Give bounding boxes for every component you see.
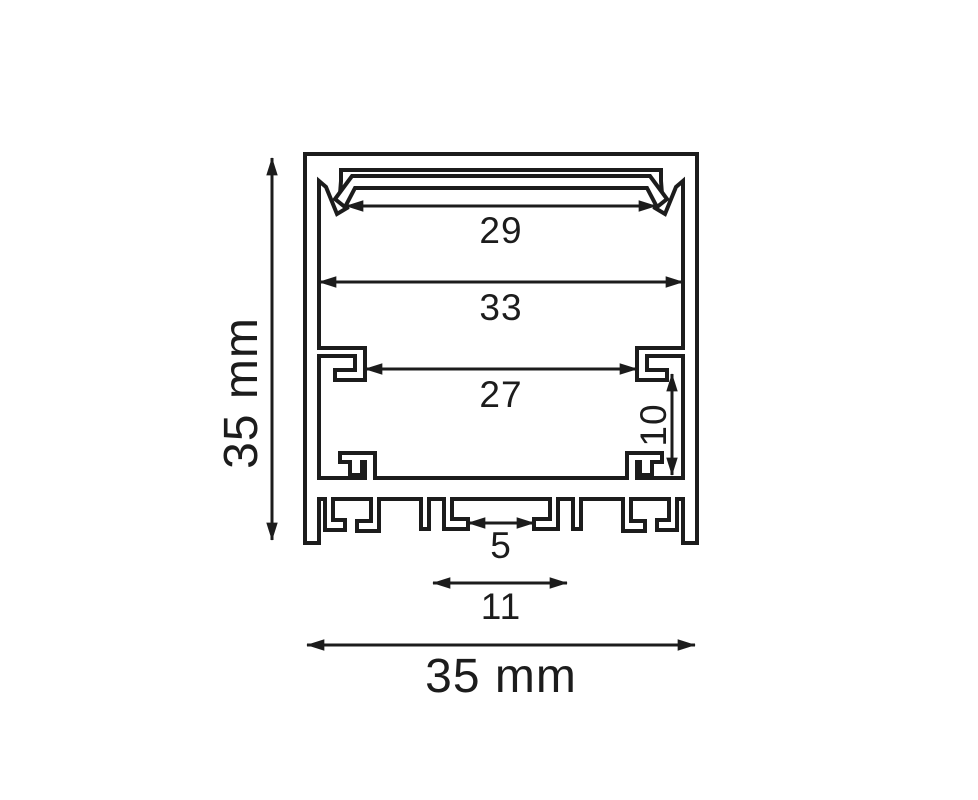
dim-10-label: 10 (633, 403, 674, 446)
profile-cross-section-drawing: 29 33 27 10 5 11 35 mm (0, 0, 978, 800)
dimension-base-channel-width: 11 (433, 583, 567, 627)
diffuser-cover-plate (335, 176, 667, 207)
dimension-overall-height: 35 mm (215, 158, 272, 540)
drawing-canvas: 29 33 27 10 5 11 35 mm (0, 0, 978, 800)
dimension-diffuser-opening: 29 (346, 206, 656, 251)
dim-5-label: 5 (490, 525, 512, 566)
dimension-base-slot-gap: 5 (468, 523, 534, 566)
dimension-hook-span: 27 (365, 369, 637, 415)
dim-width-35-label: 35 mm (425, 650, 577, 703)
dim-height-35-label: 35 mm (215, 317, 268, 469)
dim-27-label: 27 (479, 374, 522, 415)
dim-11-label: 11 (481, 586, 521, 627)
dimension-inner-cavity: 33 (319, 282, 683, 328)
dim-33-label: 33 (479, 287, 522, 328)
dimension-overall-width: 35 mm (307, 645, 695, 703)
dim-29-label: 29 (479, 210, 522, 251)
